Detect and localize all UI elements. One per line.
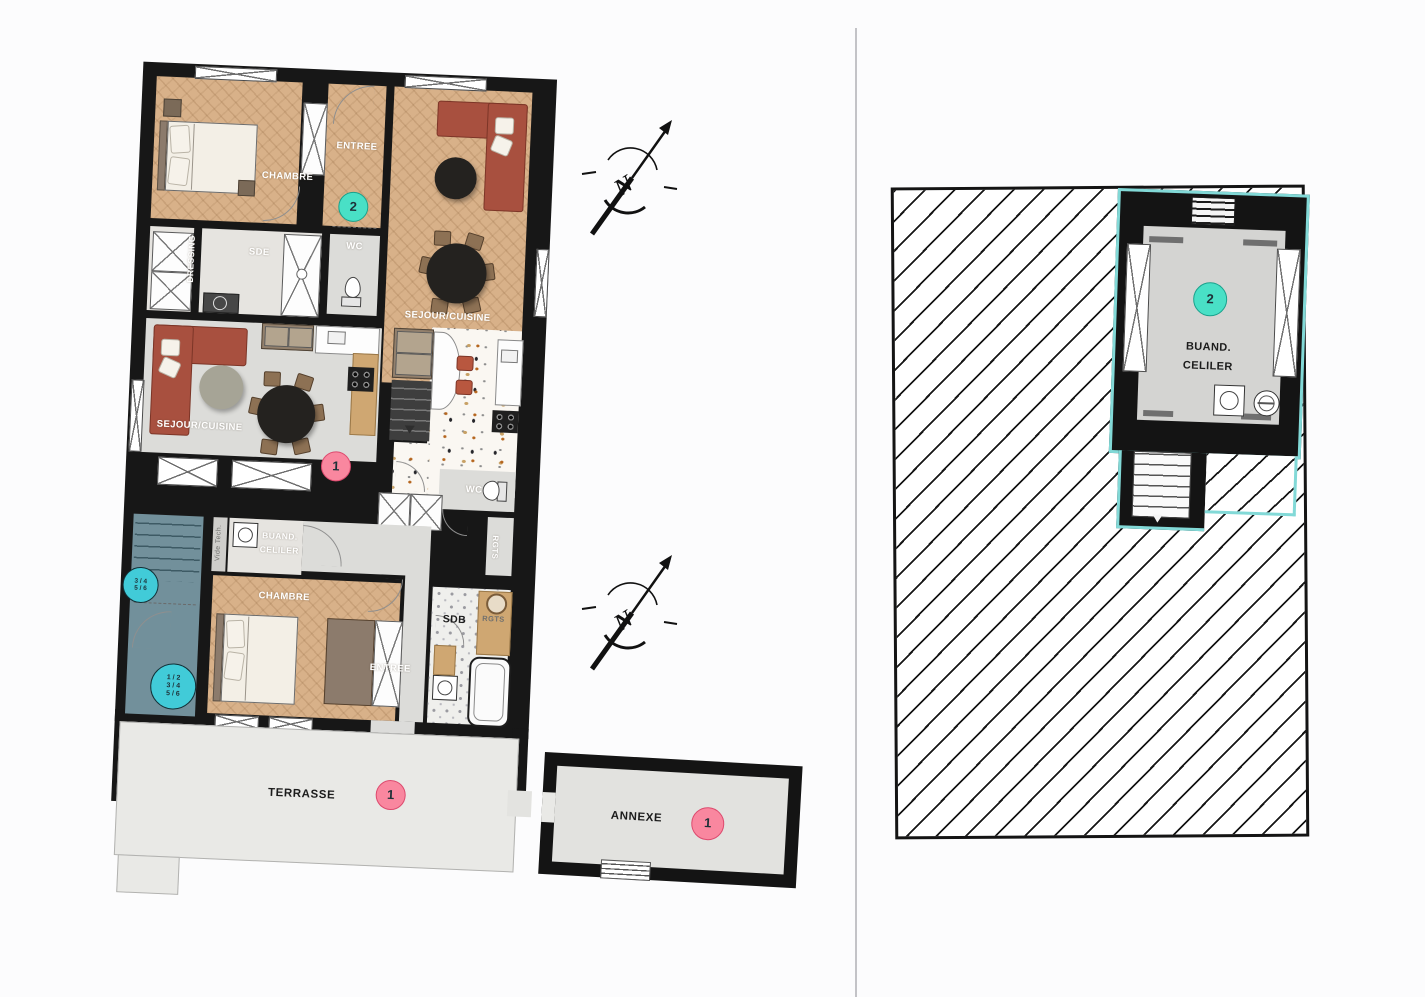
annexe-door-gap <box>541 792 556 823</box>
ap2-bench <box>238 180 256 197</box>
ap1-wood-counter <box>349 353 379 436</box>
detail-room-label: BUAND. CELILER <box>1158 337 1259 378</box>
unit-stairs <box>1132 451 1192 519</box>
compass-north-top: N <box>572 108 690 246</box>
ap1-kitchen-cabinets <box>261 323 314 351</box>
ap1-buand-label: BUAND. CELILER <box>254 529 305 558</box>
ap1-sink <box>327 331 346 345</box>
unit-lintel <box>1243 239 1277 246</box>
unit-hatch-notch <box>1205 453 1298 516</box>
unit-window-right <box>1273 249 1301 378</box>
ap2-wc-tank <box>341 296 361 307</box>
unit-vent <box>1191 197 1236 227</box>
ap2-kitchen-cabinets <box>392 328 434 380</box>
buand-line2: CELILER <box>254 542 305 558</box>
ap1-dining-set <box>246 371 326 458</box>
unit-lintel <box>1149 236 1183 243</box>
compass-north-bottom: N <box>572 543 690 681</box>
sdb-washer <box>432 675 458 701</box>
detail-room-line2: CELILER <box>1158 355 1259 377</box>
kitchen-stool <box>455 380 473 396</box>
ap1-stove <box>347 367 374 392</box>
detail-unit: 2 BUAND. CELILER <box>1106 188 1310 539</box>
ap2-sde-label: SDE <box>234 246 284 259</box>
floor-plan-page: CHAMBRE ENTREE DRESSING SDE WC SEJOUR/CU… <box>0 0 1425 997</box>
ap2-nightstand <box>163 98 182 117</box>
ap2-stove <box>492 410 519 433</box>
annexe-building: ANNEXE 1 <box>538 752 802 888</box>
unit-block: 2 BUAND. CELILER <box>1109 188 1310 460</box>
ap2-dining-set <box>417 230 497 317</box>
sdb-bathtub <box>467 656 512 728</box>
ap2-wc-top-label: WC <box>334 240 374 253</box>
unit-stairs-block <box>1116 450 1207 531</box>
window <box>231 460 312 491</box>
main-floor-plan: CHAMBRE ENTREE DRESSING SDE WC SEJOUR/CU… <box>107 62 563 925</box>
terrasse-step <box>116 854 180 895</box>
ap2-stairs-arrow <box>404 425 414 433</box>
annexe-connector <box>507 790 532 817</box>
ap1-sofa-cushion <box>161 339 181 357</box>
ap2-wc-toilet <box>344 277 361 299</box>
panel-divider <box>855 28 857 997</box>
annexe-steps <box>600 859 651 881</box>
sdb-cabinet <box>433 645 456 676</box>
window <box>157 457 218 488</box>
unit-lintel <box>1143 410 1173 417</box>
unit-stairs-arrow <box>1152 514 1162 522</box>
ap2-sink <box>501 349 519 363</box>
ap2-sofa-cushion <box>495 117 515 135</box>
ap1-counter <box>315 325 380 356</box>
window <box>534 249 550 318</box>
rgts-lower-label: RGTS <box>471 613 515 624</box>
kitchen-stool <box>456 356 474 372</box>
ap1-bed <box>213 613 299 704</box>
unit-window-left <box>1123 243 1151 372</box>
unit-washer <box>1213 384 1245 416</box>
sdb-label: SDB <box>432 613 476 627</box>
